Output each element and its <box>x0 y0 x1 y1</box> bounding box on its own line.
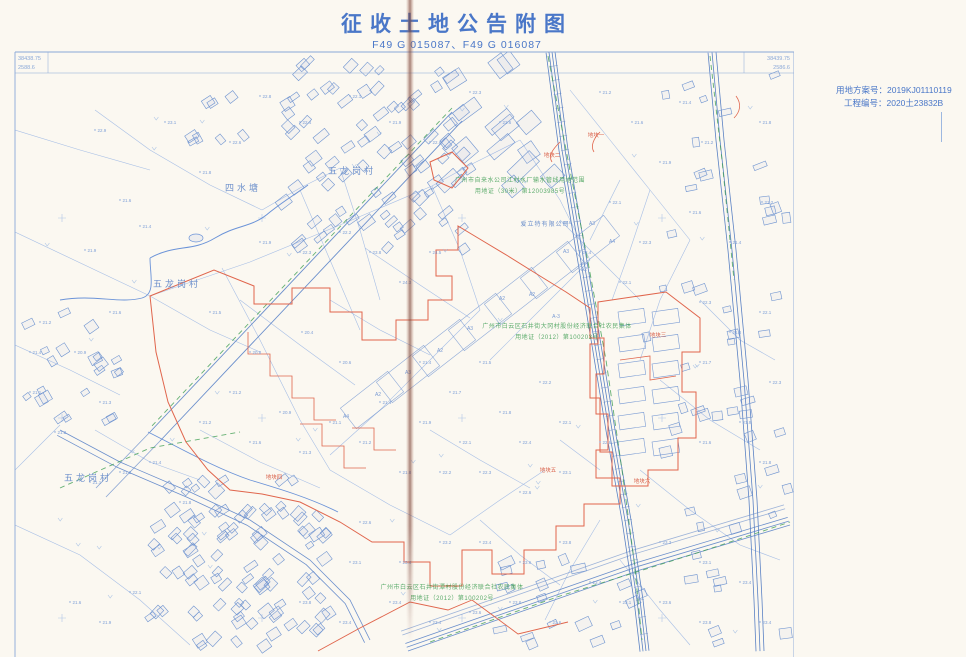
spot-elevation: 20.8 <box>253 350 262 355</box>
stream-line <box>60 258 151 300</box>
building <box>382 242 394 254</box>
acquisition-boundary <box>248 332 336 420</box>
spot-elevation: 23.4 <box>483 540 492 545</box>
spot-point <box>229 141 230 142</box>
building <box>343 58 358 73</box>
building <box>774 428 786 438</box>
building <box>322 178 335 191</box>
spot-elevation: 21.9 <box>103 620 112 625</box>
village-label: 四水塘 <box>225 182 261 193</box>
spot-elevation: 21.8 <box>733 330 742 335</box>
acquisition-boundary <box>734 96 740 118</box>
spot-elevation: 22.1 <box>463 440 472 445</box>
spot-point <box>39 321 40 322</box>
building <box>739 410 752 419</box>
spot-elevation: 21.6 <box>253 440 262 445</box>
road-line <box>402 509 785 635</box>
spot-elevation: 23.6 <box>563 220 572 225</box>
map-canvas: 五龙岗村四水塘五龙岗村五龙岗村爱立特有限公司广州市自来水公司江村水厂输水管线用地… <box>0 0 794 657</box>
parcel-line <box>330 470 450 535</box>
building <box>493 625 507 634</box>
spot-point <box>701 141 702 142</box>
acquisition-boundary <box>590 292 700 486</box>
building <box>765 464 780 475</box>
factory-building <box>652 360 680 377</box>
spot-point <box>469 91 470 92</box>
building <box>380 210 390 219</box>
spot-elevation: 23.6 <box>523 560 532 565</box>
spot-point <box>559 471 560 472</box>
spot-point <box>399 281 400 282</box>
spot-elevation: 20.9 <box>78 350 87 355</box>
spot-elevation: 21.9 <box>743 420 752 425</box>
spot-elevation: 23.8 <box>513 600 522 605</box>
building <box>682 81 695 91</box>
building <box>714 585 722 592</box>
parcel-line <box>240 300 355 385</box>
building-label: A2 <box>581 267 587 273</box>
building <box>681 281 694 294</box>
spot-point <box>769 381 770 382</box>
building <box>47 356 58 367</box>
spot-elevation: 23.1 <box>353 560 362 565</box>
spot-point <box>639 241 640 242</box>
building <box>307 89 319 100</box>
building <box>712 411 723 421</box>
spot-elevation: 22.2 <box>443 470 452 475</box>
panel-divider-line <box>941 112 942 142</box>
building <box>734 386 748 397</box>
spot-point <box>499 411 500 412</box>
spot-elevation: 21.1 <box>93 480 102 485</box>
parcel-line <box>490 260 590 360</box>
building <box>667 230 677 239</box>
building <box>275 194 292 210</box>
building <box>315 593 326 604</box>
building <box>206 631 222 647</box>
spot-elevation: 22.3 <box>643 240 652 245</box>
building <box>375 66 384 75</box>
building <box>723 306 732 313</box>
spot-elevation: 22.1 <box>563 420 572 425</box>
spot-elevation: 21.7 <box>703 360 712 365</box>
spot-point <box>631 121 632 122</box>
spot-elevation: 23.4 <box>393 600 402 605</box>
green-annotation: 广州市白云区石井街潭村股份经济联合社农民集体 <box>380 583 523 591</box>
building <box>697 522 705 532</box>
spot-point <box>539 381 540 382</box>
factory-building <box>618 334 646 351</box>
corner-coordinate: 2586.6 <box>773 65 790 71</box>
spot-elevation: 22.2 <box>543 380 552 385</box>
spot-point <box>761 201 762 202</box>
spot-elevation: 21.8 <box>403 470 412 475</box>
spot-point <box>479 361 480 362</box>
spot-point <box>299 451 300 452</box>
spot-point <box>279 411 280 412</box>
building <box>346 214 359 226</box>
building <box>575 616 592 631</box>
green-annotation: 用地证（30米）第12003985号 <box>475 187 565 195</box>
spot-elevation: 21.3 <box>303 450 312 455</box>
building <box>307 215 322 229</box>
spot-elevation: 21.9 <box>263 240 272 245</box>
building <box>284 618 297 631</box>
building <box>685 184 697 191</box>
spot-elevation: 22.6 <box>233 140 242 145</box>
spot-point <box>399 471 400 472</box>
spot-point <box>349 95 350 96</box>
parcel-line <box>430 430 530 488</box>
building <box>729 522 742 534</box>
building <box>435 67 445 77</box>
spot-point <box>619 281 620 282</box>
building <box>191 484 200 492</box>
spot-point <box>259 241 260 242</box>
building <box>225 91 238 104</box>
spot-point <box>479 471 480 472</box>
utility-line <box>710 56 734 280</box>
spot-point <box>699 621 700 622</box>
spot-point <box>419 421 420 422</box>
green-annotation: 广州市白云区石井街大冈村股份经济联合社农民集体 <box>482 322 632 330</box>
building-label: A3 <box>467 326 473 332</box>
spot-elevation: 21.2 <box>765 200 774 205</box>
building <box>662 90 670 99</box>
building <box>727 338 735 345</box>
building <box>244 560 258 572</box>
building <box>58 308 71 318</box>
spot-elevation: 23.1 <box>623 600 632 605</box>
building <box>699 95 707 103</box>
spot-elevation: 21.8 <box>203 170 212 175</box>
spot-point <box>99 621 100 622</box>
spot-elevation: 22.6 <box>503 120 512 125</box>
building <box>708 625 721 637</box>
building <box>164 502 180 518</box>
parcel-line <box>640 240 690 360</box>
factory-building <box>618 438 646 455</box>
building <box>443 68 467 91</box>
spot-elevation: 24.3 <box>403 280 412 285</box>
building <box>145 612 156 622</box>
spot-point <box>759 121 760 122</box>
building <box>744 430 756 442</box>
village-label: 五龙岗村 <box>64 472 112 483</box>
spot-elevation: 22.9 <box>98 128 107 133</box>
spot-point <box>519 491 520 492</box>
spot-elevation: 21.6 <box>73 600 82 605</box>
spot-elevation: 23.3 <box>663 540 672 545</box>
building <box>498 556 515 571</box>
building <box>81 388 90 396</box>
building <box>770 292 781 301</box>
building <box>762 215 776 225</box>
spot-point <box>759 311 760 312</box>
building-label: A2 <box>529 292 535 298</box>
building <box>213 598 226 611</box>
plot-label: 地块二 <box>544 151 561 159</box>
spot-point <box>419 361 420 362</box>
spot-elevation: 21.4 <box>33 350 42 355</box>
parcel-line <box>560 440 600 470</box>
pond <box>189 234 203 242</box>
spot-elevation: 20.9 <box>283 410 292 415</box>
spot-elevation: 23.1 <box>168 120 177 125</box>
plot-label: 地块六 <box>634 477 651 485</box>
building <box>537 593 548 602</box>
spot-point <box>69 601 70 602</box>
parcel-line <box>15 130 150 170</box>
building <box>414 207 427 220</box>
spot-elevation: 20.6 <box>343 360 352 365</box>
spot-elevation: 24.5 <box>433 250 442 255</box>
building <box>769 71 780 80</box>
spot-point <box>609 201 610 202</box>
building <box>684 575 698 585</box>
spot-elevation: 23.4 <box>403 560 412 565</box>
spot-elevation: 23.6 <box>553 620 562 625</box>
spot-elevation: 22.1 <box>133 590 142 595</box>
spot-point <box>119 199 120 200</box>
building <box>305 541 313 549</box>
parcel-line <box>432 186 480 310</box>
spot-elevation: 20.4 <box>305 330 314 335</box>
parcel-line <box>330 310 480 455</box>
building <box>23 392 31 400</box>
building <box>297 572 311 586</box>
factory-parcel <box>484 267 547 324</box>
spot-elevation: 21.2 <box>705 140 714 145</box>
spot-elevation: 23.2 <box>443 540 452 545</box>
acquisition-boundary <box>352 428 396 450</box>
spot-elevation: 22.6 <box>363 520 372 525</box>
spot-elevation: 23.8 <box>303 600 312 605</box>
spot-elevation: 21.4 <box>383 400 392 405</box>
spot-elevation: 22.2 <box>343 230 352 235</box>
building <box>782 212 791 223</box>
building <box>360 62 374 76</box>
building <box>536 578 549 591</box>
spot-elevation: 21.6 <box>113 310 122 315</box>
spot-point <box>699 361 700 362</box>
building <box>212 566 222 577</box>
info-panel: 用地方案号：2019KJ01110119 工程编号：2020土23832B <box>836 84 966 110</box>
building <box>452 137 479 164</box>
building <box>768 511 776 519</box>
building <box>317 551 333 566</box>
spot-elevation: 22.3 <box>303 250 312 255</box>
spot-point <box>599 441 600 442</box>
spot-elevation: 21.1 <box>333 420 342 425</box>
parcel-line <box>365 248 470 318</box>
spot-point <box>389 601 390 602</box>
spot-elevation: 22.4 <box>303 120 312 125</box>
plot-label: 地块五 <box>540 466 557 474</box>
cadastral-map-svg: 五龙岗村四水塘五龙岗村五龙岗村爱立特有限公司广州市自来水公司江村水厂输水管线用地… <box>0 0 794 657</box>
plot-label: 地块一 <box>588 131 605 139</box>
spot-point <box>199 421 200 422</box>
spot-point <box>559 421 560 422</box>
parcel-line <box>330 300 430 355</box>
spot-elevation: 21.8 <box>763 120 772 125</box>
spot-point <box>499 121 500 122</box>
corner-coordinate: 38439.75 <box>767 56 790 62</box>
building <box>706 569 719 578</box>
building-label: A3 <box>589 221 595 227</box>
building <box>753 161 767 171</box>
road-line <box>716 52 764 651</box>
building <box>356 119 367 130</box>
spot-elevation: 22.3 <box>773 380 782 385</box>
spot-elevation: 23.4 <box>593 580 602 585</box>
spot-point <box>84 249 85 250</box>
parcel-line <box>15 525 190 645</box>
spot-elevation: 21.6 <box>693 210 702 215</box>
spot-elevation: 21.2 <box>123 470 132 475</box>
factory-building <box>618 360 646 377</box>
building-label: A2 <box>499 296 505 302</box>
spot-point <box>339 231 340 232</box>
building <box>737 486 753 500</box>
spot-point <box>109 311 110 312</box>
spot-elevation: 21.9 <box>423 420 432 425</box>
spot-elevation: 23.4 <box>433 620 442 625</box>
building <box>211 549 223 561</box>
building <box>570 563 586 574</box>
spot-elevation: 22.3 <box>483 470 492 475</box>
spot-elevation: 23.4 <box>743 580 752 585</box>
building <box>516 110 541 135</box>
building <box>735 473 747 484</box>
spot-point <box>89 481 90 482</box>
stream-line <box>148 432 338 512</box>
building <box>558 553 569 565</box>
spot-elevation: 21.2 <box>363 440 372 445</box>
spot-point <box>429 621 430 622</box>
spot-elevation: 21.2 <box>203 420 212 425</box>
building <box>287 475 298 486</box>
spot-point <box>299 121 300 122</box>
spot-point <box>659 541 660 542</box>
spot-elevation: 21.4 <box>423 360 432 365</box>
spot-elevation: 22.3 <box>703 300 712 305</box>
spot-point <box>339 621 340 622</box>
spot-point <box>519 441 520 442</box>
spot-elevation: 21.9 <box>88 248 97 253</box>
project-number-label: 工程编号：2020土23832B <box>844 97 966 110</box>
building-label: A4 <box>609 239 615 245</box>
factory-building <box>618 386 646 403</box>
spot-point <box>469 611 470 612</box>
parcel-line <box>450 470 545 535</box>
building <box>22 318 35 329</box>
spot-elevation: 21.8 <box>503 410 512 415</box>
spot-point <box>579 251 580 252</box>
building-label: A4 <box>343 414 349 420</box>
spot-point <box>249 351 250 352</box>
spot-elevation: 21.1 <box>33 390 42 395</box>
spot-point <box>339 361 340 362</box>
spot-elevation: 21.5 <box>213 310 222 315</box>
spot-point <box>739 421 740 422</box>
spot-elevation: 21.8 <box>183 500 192 505</box>
building <box>231 636 243 648</box>
spot-point <box>559 221 560 222</box>
spot-point <box>349 561 350 562</box>
building <box>741 396 756 406</box>
building <box>246 618 258 630</box>
building <box>336 206 347 217</box>
spot-point <box>54 431 55 432</box>
building <box>759 330 771 338</box>
building <box>455 223 468 236</box>
building <box>691 550 701 559</box>
plot-label: 地块三 <box>650 331 667 339</box>
spot-point <box>74 351 75 352</box>
parcel-line <box>590 180 620 240</box>
spot-point <box>149 461 150 462</box>
building <box>779 627 792 639</box>
building <box>449 97 482 126</box>
building <box>181 486 191 496</box>
building <box>257 639 272 653</box>
building <box>84 319 99 334</box>
spot-point <box>389 121 390 122</box>
building <box>590 635 605 647</box>
spot-point <box>99 401 100 402</box>
spot-elevation: 21.7 <box>453 390 462 395</box>
building <box>685 507 696 516</box>
spot-point <box>329 421 330 422</box>
spot-elevation: 23.1 <box>703 560 712 565</box>
building <box>288 180 304 196</box>
building <box>659 285 667 292</box>
spot-elevation: 21.4 <box>143 224 152 229</box>
building <box>540 164 565 188</box>
building <box>669 422 682 435</box>
spot-point <box>179 501 180 502</box>
spot-point <box>94 129 95 130</box>
spot-elevation: 23.6 <box>473 610 482 615</box>
factory-building <box>652 386 680 403</box>
spot-point <box>679 101 680 102</box>
spot-point <box>29 351 30 352</box>
spot-elevation: 23.8 <box>563 540 572 545</box>
spot-elevation: 21.2 <box>603 90 612 95</box>
road-line <box>401 505 784 631</box>
building <box>297 620 311 633</box>
building <box>659 446 673 459</box>
acquisition-boundary <box>318 600 472 651</box>
spot-point <box>429 141 430 142</box>
building <box>712 638 724 647</box>
building <box>266 627 281 641</box>
spot-elevation: 21.3 <box>103 400 112 405</box>
spot-point <box>729 331 730 332</box>
spot-elevation: 22.3 <box>473 90 482 95</box>
building <box>111 355 121 364</box>
parcel-line <box>15 232 260 352</box>
building <box>678 402 688 413</box>
spot-elevation: 22.1 <box>763 310 772 315</box>
green-annotation: 广州市自来水公司江村水厂输水管线用地范围 <box>455 176 585 184</box>
spot-point <box>739 581 740 582</box>
building <box>313 128 329 143</box>
spot-point <box>619 601 620 602</box>
building <box>150 519 165 533</box>
building <box>316 172 326 181</box>
